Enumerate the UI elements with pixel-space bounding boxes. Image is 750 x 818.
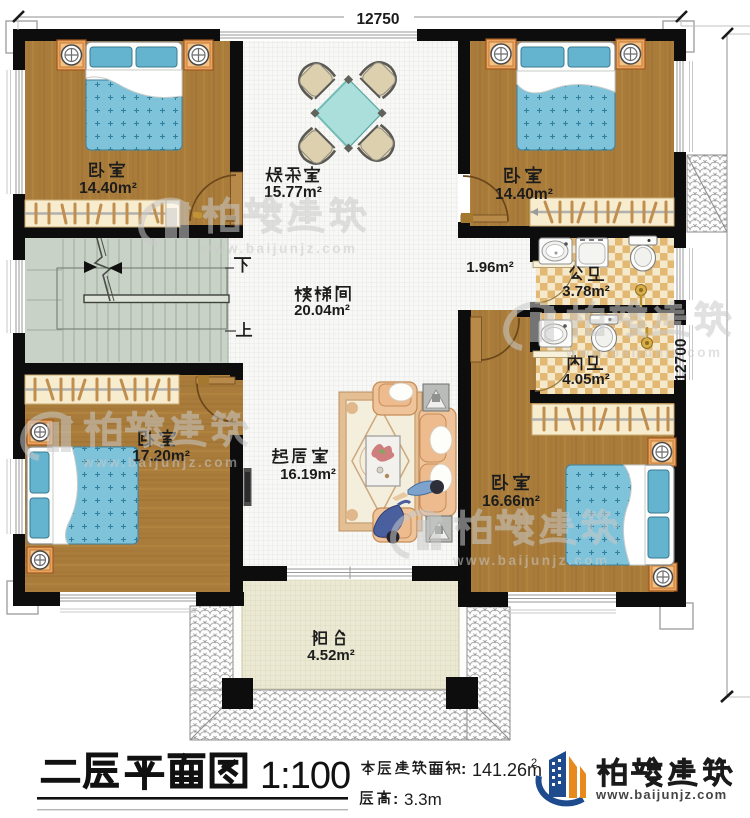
svg-text:2: 2	[531, 757, 537, 769]
svg-text:16.66m²: 16.66m²	[482, 493, 540, 510]
svg-text:14.40m²: 14.40m²	[495, 186, 553, 203]
svg-text:16.19m²: 16.19m²	[280, 466, 336, 483]
svg-text::: :	[393, 791, 398, 808]
svg-text:12750: 12750	[356, 11, 399, 28]
svg-text:20.04m²: 20.04m²	[294, 302, 350, 319]
svg-text:4.05m²: 4.05m²	[562, 371, 610, 388]
svg-text::: :	[461, 761, 466, 778]
svg-text:3.3m: 3.3m	[404, 790, 442, 809]
svg-text:3.78m²: 3.78m²	[562, 283, 610, 300]
svg-text:14.40m²: 14.40m²	[79, 180, 137, 197]
svg-text:www.baijunjz.com: www.baijunjz.com	[595, 787, 727, 802]
svg-text:4.52m²: 4.52m²	[307, 647, 355, 664]
svg-text:1:100: 1:100	[260, 755, 350, 797]
svg-text:1.96m²: 1.96m²	[466, 259, 514, 276]
